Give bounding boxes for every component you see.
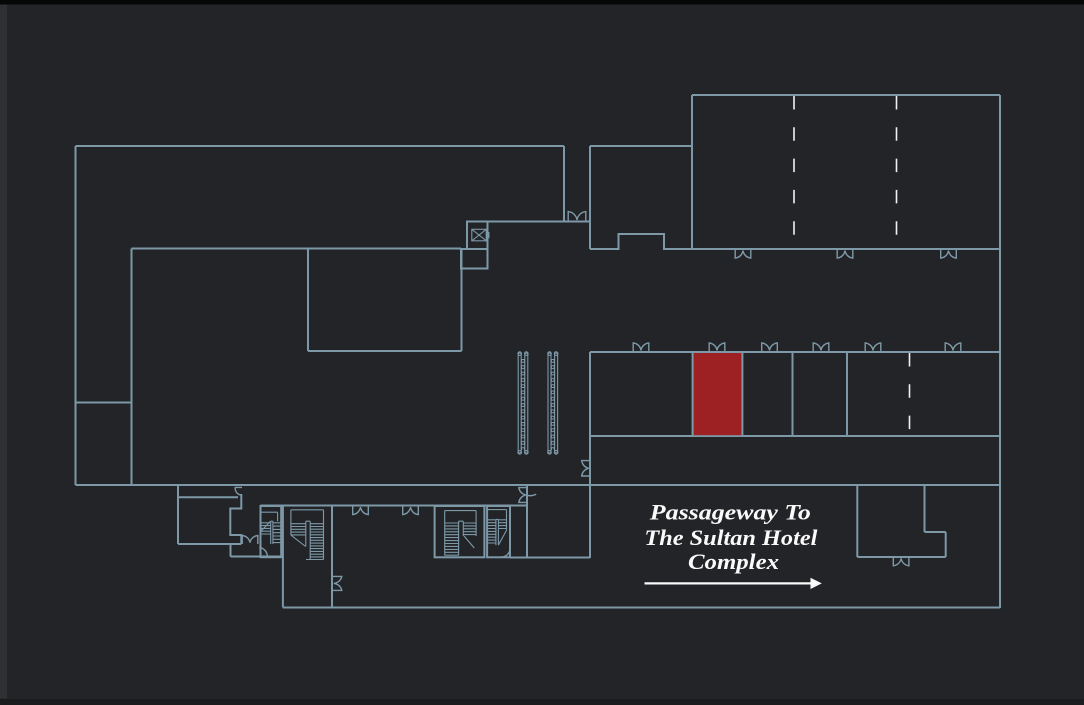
svg-text:Complex: Complex [688, 549, 779, 574]
svg-text:Passageway To: Passageway To [649, 500, 811, 525]
svg-text:The Sultan Hotel: The Sultan Hotel [644, 525, 818, 550]
